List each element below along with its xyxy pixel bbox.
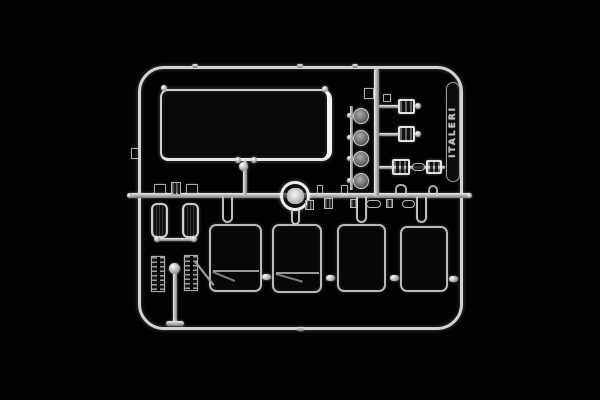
frame-node bbox=[192, 64, 198, 68]
gate-knob bbox=[415, 103, 421, 109]
runner-end-knob bbox=[127, 193, 132, 198]
runner-arm bbox=[379, 133, 399, 136]
runner-end-knob bbox=[467, 193, 472, 198]
small-lens-part bbox=[402, 200, 415, 208]
small-clip-part bbox=[386, 199, 393, 208]
bottom-gate-stem bbox=[173, 270, 177, 325]
gate-hanger bbox=[222, 197, 233, 223]
gate-hanger bbox=[416, 197, 427, 223]
light-housing-part bbox=[398, 126, 415, 142]
gate-hanger bbox=[356, 197, 367, 223]
gate-knob bbox=[154, 236, 160, 242]
gate-knob bbox=[415, 131, 421, 137]
small-lens-part bbox=[412, 163, 425, 171]
pane-connector bbox=[390, 275, 399, 281]
gate-knob bbox=[191, 236, 197, 242]
pane-connector bbox=[449, 276, 458, 282]
small-side-window bbox=[182, 203, 199, 238]
small-side-window bbox=[151, 203, 168, 238]
gate-knob bbox=[347, 156, 352, 161]
photo-canvas: ITALERI bbox=[0, 0, 600, 400]
small-bracket-part bbox=[186, 184, 198, 194]
frame-node bbox=[352, 64, 358, 68]
side-window-pane bbox=[337, 224, 386, 292]
headlight-lens bbox=[353, 108, 369, 124]
gate-knob bbox=[169, 263, 180, 274]
small-lens-part bbox=[366, 200, 381, 208]
runner-stub bbox=[428, 185, 438, 196]
runner-stub bbox=[395, 184, 407, 196]
side-window-pane bbox=[272, 224, 322, 293]
gate-knob bbox=[235, 157, 241, 163]
gate-foot bbox=[166, 321, 184, 326]
pane-connector bbox=[326, 275, 335, 281]
pane-divider bbox=[213, 270, 259, 272]
windshield-part bbox=[160, 89, 332, 161]
gate-knob bbox=[347, 135, 352, 140]
small-clip-part bbox=[305, 200, 314, 210]
gate-knob bbox=[239, 162, 248, 171]
runner-arm bbox=[379, 105, 399, 108]
brand-text: ITALERI bbox=[448, 106, 458, 158]
frame-node bbox=[297, 64, 303, 68]
brand-strip: ITALERI bbox=[446, 82, 460, 182]
runner-vertical bbox=[374, 69, 379, 196]
vent-window-edge bbox=[276, 273, 303, 282]
gate-knob bbox=[251, 157, 257, 163]
frame-node bbox=[297, 327, 304, 331]
small-tab-part bbox=[341, 185, 348, 196]
frame-tab bbox=[131, 148, 139, 159]
side-window-pane bbox=[400, 226, 448, 292]
gate-knob bbox=[347, 178, 352, 183]
gate-hanger bbox=[291, 209, 300, 225]
headlight-lens bbox=[353, 130, 369, 146]
small-clip-part bbox=[383, 94, 391, 102]
small-clip-part bbox=[364, 88, 374, 99]
light-housing-part bbox=[398, 99, 415, 114]
light-housing-part bbox=[392, 159, 410, 175]
pane-connector bbox=[262, 274, 271, 280]
side-window-pane bbox=[209, 224, 262, 292]
dome-light-lens bbox=[287, 188, 304, 204]
small-tab-part bbox=[317, 185, 323, 196]
small-clip-part bbox=[324, 198, 333, 209]
vent-window-edge bbox=[212, 271, 235, 281]
gate-knob bbox=[161, 85, 167, 91]
headlight-lens bbox=[353, 173, 369, 189]
light-housing-part bbox=[426, 160, 442, 174]
ribbed-grille-part bbox=[151, 256, 165, 292]
pane-divider bbox=[276, 272, 319, 274]
small-bracket-part bbox=[154, 184, 166, 194]
small-clip-part bbox=[171, 182, 181, 195]
gate-knob bbox=[322, 86, 328, 92]
headlight-lens bbox=[353, 151, 369, 167]
connector-bar bbox=[157, 238, 194, 241]
gate-knob bbox=[347, 113, 352, 118]
